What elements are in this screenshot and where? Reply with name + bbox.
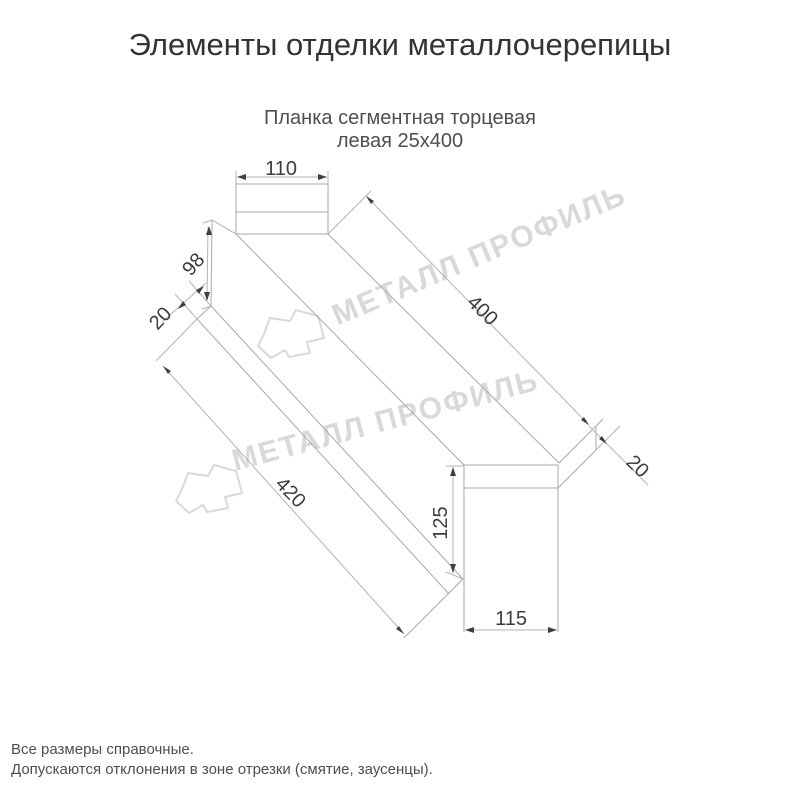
arrow-110-right (318, 174, 327, 180)
arrow-420-right (396, 626, 404, 634)
footer-note-2: Допускаются отклонения в зоне отрезки (с… (11, 760, 433, 780)
arrow-98-top (206, 226, 212, 235)
dim-label-bottom-width: 115 (495, 608, 527, 630)
technical-diagram: МЕТАЛЛ ПРОФИЛЬ МЕТАЛЛ ПРОФИЛЬ (0, 0, 800, 800)
watermark-group: МЕТАЛЛ ПРОФИЛЬ МЕТАЛЛ ПРОФИЛЬ (176, 178, 631, 513)
arrow-125-top (450, 467, 456, 476)
arrow-420-left (163, 366, 171, 374)
dim-label-near-height: 125 (430, 506, 452, 539)
arrow-115-left (465, 627, 474, 633)
footer-notes: Все размеры справочные. Допускаются откл… (11, 740, 433, 780)
dim-label-far-hem: 20 (145, 303, 176, 334)
dim-label-bottom-length: 420 (271, 473, 310, 512)
dim-label-far-height: 98 (178, 249, 209, 280)
metall-profil-logo-watermark-2 (176, 465, 242, 513)
watermark-text-2: МЕТАЛЛ ПРОФИЛЬ (229, 364, 543, 478)
dim-label-near-hem: 20 (622, 451, 653, 482)
page-background: Элементы отделки металлочерепицы Планка … (0, 0, 800, 800)
metall-profil-logo-watermark-1 (258, 310, 324, 358)
dim-label-top-length: 400 (463, 291, 502, 330)
arrow-110-left (237, 174, 246, 180)
footer-note-1: Все размеры справочные. (11, 740, 433, 760)
dim-label-top-width: 110 (265, 158, 297, 180)
arrow-125-bottom (450, 564, 456, 573)
arrow-115-right (548, 627, 557, 633)
